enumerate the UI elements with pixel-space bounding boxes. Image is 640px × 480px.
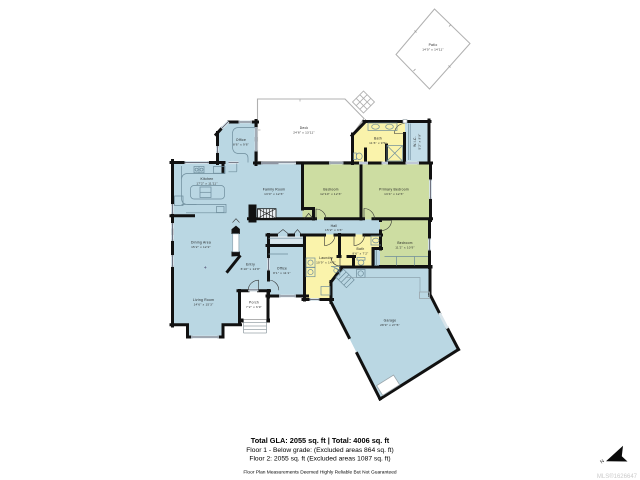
svg-text:Primary Bedroom: Primary Bedroom — [379, 187, 409, 191]
svg-text:Floor 1 - Below grade: (Exclud: Floor 1 - Below grade: (Excluded areas 8… — [246, 447, 394, 454]
svg-text:15'2" x 3'3": 15'2" x 3'3" — [325, 228, 343, 232]
svg-text:Patio: Patio — [429, 43, 438, 47]
svg-text:Kitchen: Kitchen — [201, 177, 214, 181]
svg-text:11'6" x 9'5": 11'6" x 9'5" — [369, 141, 387, 145]
svg-text:5'2" x 9'9": 5'2" x 9'9" — [417, 134, 421, 150]
svg-text:14'0" x 14'11": 14'0" x 14'11" — [422, 47, 444, 51]
svg-text:15'2" x 12'2": 15'2" x 12'2" — [191, 245, 211, 249]
svg-text:Family Room: Family Room — [263, 187, 285, 191]
svg-text:10'9" x 14'6": 10'9" x 14'6" — [316, 260, 336, 264]
svg-text:N: N — [599, 458, 606, 465]
svg-text:8'6" x 9'6": 8'6" x 9'6" — [233, 142, 249, 146]
svg-text:Floor Plan Measurements Deemed: Floor Plan Measurements Deemed Highly Re… — [243, 470, 396, 476]
svg-text:11'2" x 10'9": 11'2" x 10'9" — [395, 245, 415, 249]
svg-text:Laundry: Laundry — [319, 256, 333, 260]
svg-text:W.I.C.: W.I.C. — [413, 136, 417, 147]
svg-text:Office: Office — [236, 138, 246, 142]
svg-text:Total GLA: 2055 sq. ft | Total: Total GLA: 2055 sq. ft | Total: 4006 sq.… — [251, 436, 390, 445]
svg-text:Floor 2: 2055 sq. ft (Excluded: Floor 2: 2055 sq. ft (Excluded areas 108… — [249, 456, 390, 463]
svg-text:12'10" x 12'3": 12'10" x 12'3" — [320, 192, 342, 196]
svg-text:8'6" x 7'2": 8'6" x 7'2" — [353, 251, 369, 255]
svg-text:Bedroom: Bedroom — [397, 241, 412, 245]
svg-text:28'9" x 27'6": 28'9" x 27'6" — [380, 323, 400, 327]
svg-text:Garage: Garage — [384, 318, 397, 322]
svg-text:13'0" x 12'3": 13'0" x 12'3" — [264, 192, 284, 196]
svg-text:7'2" x 6'9": 7'2" x 6'9" — [246, 305, 262, 309]
svg-text:Dining Area: Dining Area — [191, 240, 211, 244]
svg-text:13'4" x 12'3": 13'4" x 12'3" — [384, 192, 404, 196]
svg-text:MLS®1626647: MLS®1626647 — [597, 473, 638, 480]
svg-text:Deck: Deck — [300, 126, 309, 130]
svg-text:Entry: Entry — [246, 262, 255, 266]
svg-text:Bedroom: Bedroom — [323, 187, 338, 191]
svg-text:Living Room: Living Room — [193, 298, 214, 302]
svg-text:Bath: Bath — [374, 136, 382, 140]
svg-text:Porch: Porch — [249, 300, 259, 304]
svg-text:8'1" x 11'1": 8'1" x 11'1" — [273, 271, 291, 275]
svg-text:17'2" x 11'11": 17'2" x 11'11" — [196, 181, 217, 185]
svg-text:Bath: Bath — [357, 247, 365, 251]
svg-text:Office: Office — [277, 266, 287, 270]
svg-text:14'6" x 15'3": 14'6" x 15'3" — [194, 302, 214, 306]
svg-text:6'10" x 14'8": 6'10" x 14'8" — [241, 267, 261, 271]
svg-text:24'8" x 13'11": 24'8" x 13'11" — [293, 130, 315, 134]
